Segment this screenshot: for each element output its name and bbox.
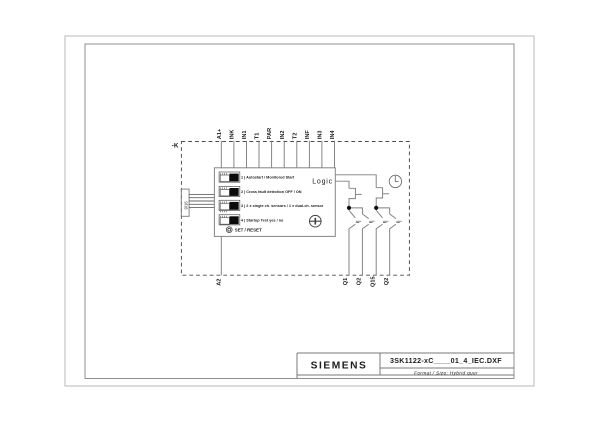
svg-text:Format / Size: Hybrid quer: Format / Size: Hybrid quer — [414, 371, 478, 377]
svg-text:9/16: 9/16 — [183, 201, 188, 210]
svg-text:IN1: IN1 — [242, 130, 248, 139]
svg-text:SET / RESET: SET / RESET — [235, 227, 262, 232]
svg-text:IN2: IN2 — [280, 130, 286, 139]
svg-text:INF: INF — [305, 130, 311, 140]
svg-text:Q1: Q1 — [343, 278, 349, 285]
svg-text:Q2: Q2 — [384, 278, 390, 285]
svg-text:SIEMENS: SIEMENS — [311, 361, 368, 372]
svg-text:IN3: IN3 — [318, 130, 324, 139]
svg-text:Q15: Q15 — [370, 276, 376, 287]
svg-text:PAR: PAR — [267, 128, 273, 139]
svg-text:T1: T1 — [255, 133, 261, 140]
svg-text:T2: T2 — [292, 133, 298, 140]
svg-text:3 | 2 x single ch. sensors / 1: 3 | 2 x single ch. sensors / 1 x dual-ch… — [241, 204, 324, 208]
svg-text:A2: A2 — [217, 279, 223, 286]
svg-text:INK: INK — [230, 130, 236, 140]
svg-text:4 | Startup Test yes / no: 4 | Startup Test yes / no — [241, 218, 284, 222]
svg-text:IN4: IN4 — [330, 130, 336, 140]
svg-text:1 | Autostart / Monitored Star: 1 | Autostart / Monitored Start — [241, 176, 295, 180]
svg-text:Q2: Q2 — [357, 278, 363, 285]
svg-text:-K: -K — [172, 143, 179, 150]
svg-text:A1+: A1+ — [217, 128, 223, 139]
svg-text:2 | Cross fault detection OFF: 2 | Cross fault detection OFF / ON — [241, 190, 302, 194]
svg-text:3SK1122-xC____01_4_IEC.DXF: 3SK1122-xC____01_4_IEC.DXF — [390, 357, 502, 365]
svg-text:Logic: Logic — [312, 178, 333, 185]
